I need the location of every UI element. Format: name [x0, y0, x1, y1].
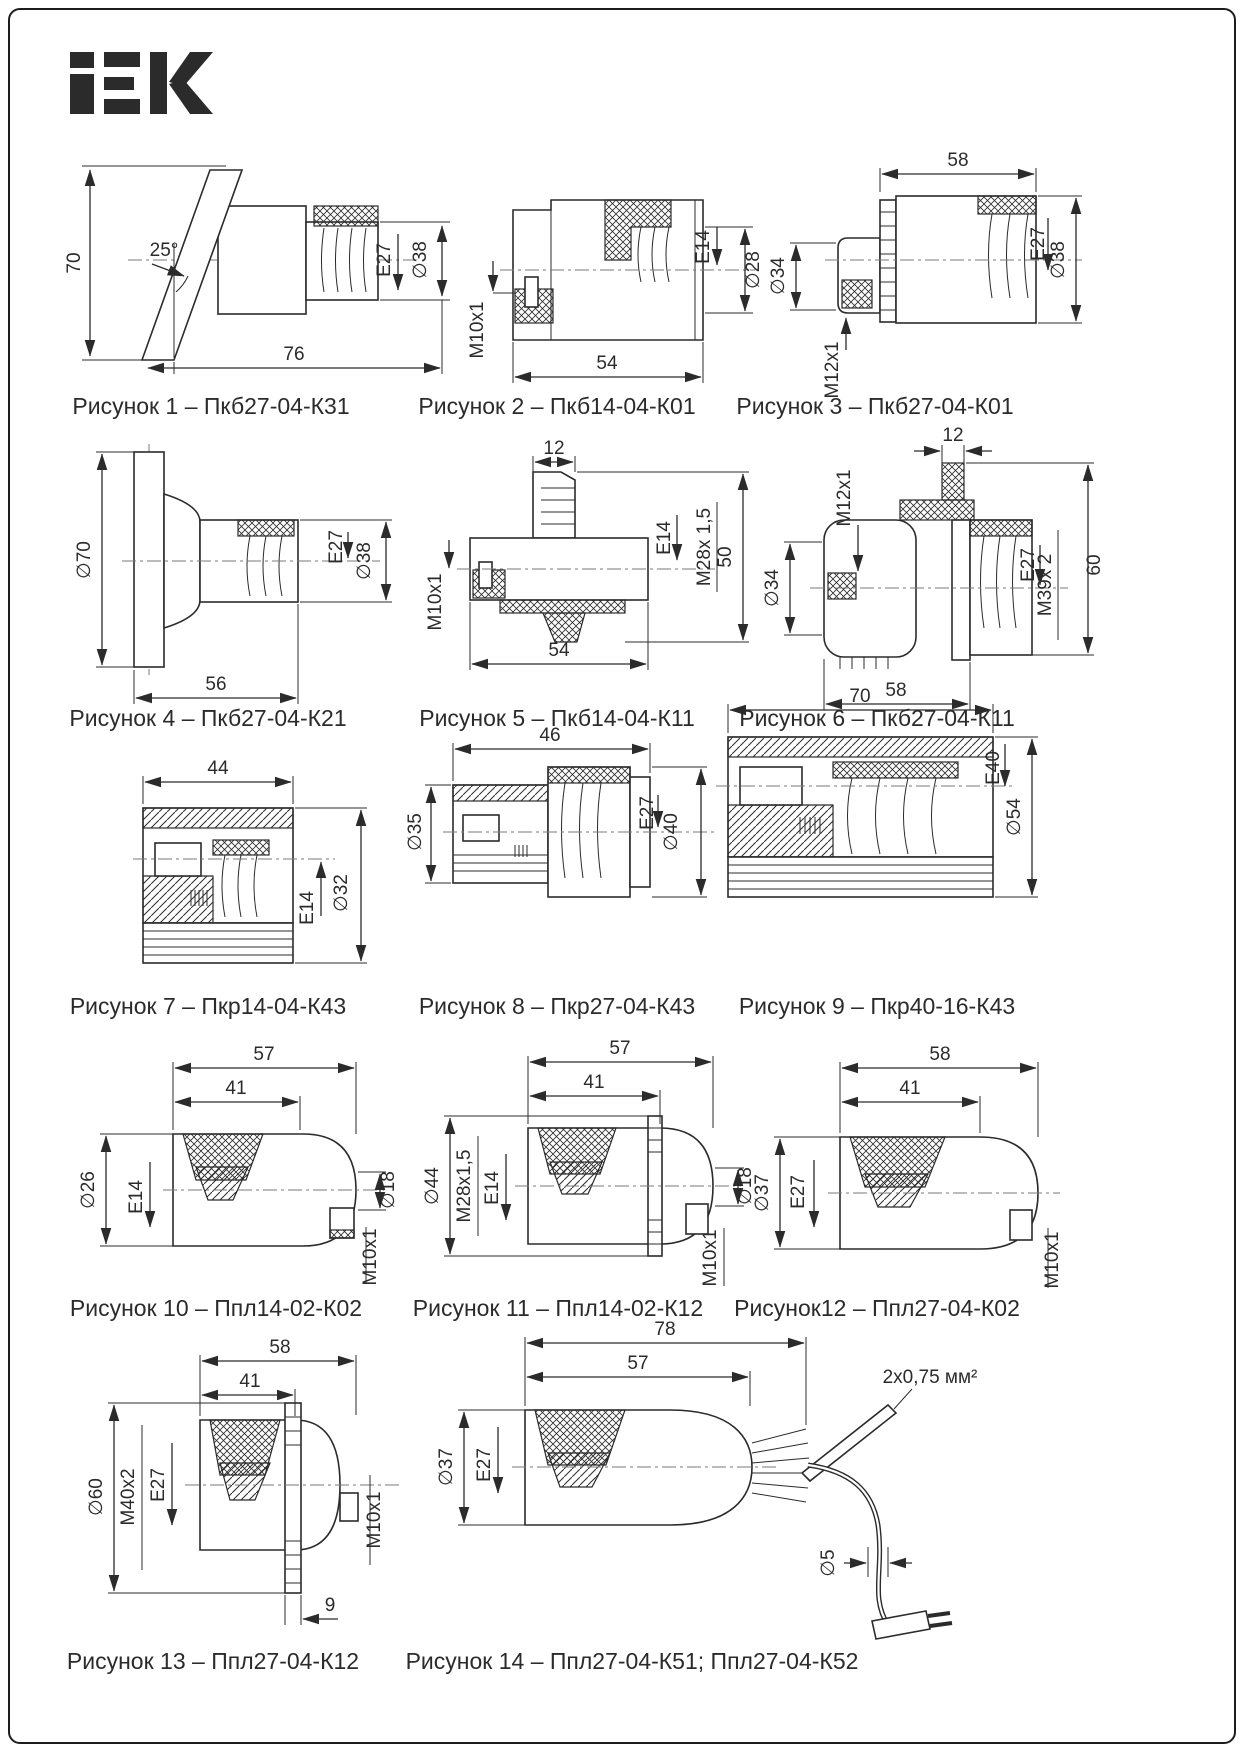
dim-gland: M10x1 — [467, 301, 488, 358]
figure-9-caption: Рисунок 9 – Пкр40-16-К43 — [739, 993, 1015, 1020]
figure-1-caption: Рисунок 1 – Пкб27-04-К31 — [72, 393, 349, 420]
dim-dia: ∅32 — [331, 874, 352, 912]
figure-7-caption: Рисунок 7 – Пкр14-04-К43 — [70, 993, 346, 1020]
dim-length: 58 — [929, 1044, 950, 1065]
figure-3-caption: Рисунок 3 – Пкб27-04-К01 — [736, 393, 1013, 420]
dim-length: 76 — [283, 344, 304, 365]
dim-gland: M10x1 — [425, 573, 446, 630]
dim-dia: ∅54 — [1004, 798, 1025, 836]
dim-lamp: E27 — [1028, 227, 1049, 261]
dim-height: 60 — [1084, 554, 1105, 575]
figure-14-outline — [512, 1405, 952, 1639]
dim-boss: 12 — [942, 425, 963, 446]
dim-mount: M28x 1,5 — [694, 508, 715, 586]
figure-13-caption: Рисунок 13 – Ппл27-04-К12 — [67, 1648, 359, 1675]
iek-logo — [70, 48, 220, 118]
dim-boss: 12 — [543, 438, 564, 459]
dim-length: 57 — [609, 1038, 630, 1059]
dim-nipple: M10x1 — [1042, 1231, 1063, 1288]
dim-cord: 2x0,75 мм² — [883, 1367, 978, 1388]
dim-lamp: E27 — [474, 1448, 495, 1482]
iek-logo-shapes — [70, 52, 213, 114]
figure-6-caption: Рисунок 6 – Пкб27-04-К11 — [739, 705, 1015, 732]
dim-body-len: 41 — [225, 1078, 246, 1099]
dim-body-dia: ∅34 — [762, 569, 783, 607]
figure-10-drawing: 57 41 ∅26 E14 ∅18 M10x1 — [68, 1032, 403, 1297]
figure-5-outline — [457, 472, 715, 642]
dim-length: 54 — [548, 640, 570, 661]
dim-body-dia: ∅35 — [405, 813, 426, 851]
dim-dia: ∅40 — [661, 813, 682, 851]
dim-angle: 25° — [150, 240, 179, 261]
dim-dia: ∅37 — [436, 1448, 457, 1486]
dim-dia: ∅60 — [86, 1478, 107, 1516]
dim-length: 70 — [849, 686, 870, 707]
dim-lamp: E14 — [482, 1171, 503, 1205]
dim-lamp: E14 — [126, 1180, 147, 1214]
dim-lamp: E27 — [326, 530, 347, 564]
dim-body-len: 41 — [899, 1078, 920, 1099]
figure-8-drawing: 46 ∅35 E27 ∅40 — [415, 715, 725, 945]
dim-length: 58 — [947, 150, 968, 171]
figure-4-drawing: ∅70 E27 ∅38 56 — [70, 432, 405, 722]
figure-11-drawing: 57 41 ∅44 M28x1,5 E14 ∅18 M10x1 — [420, 1028, 750, 1298]
figure-12-drawing: 58 41 ∅37 E27 M10x1 — [740, 1032, 1070, 1297]
dim-hole-dia: ∅18 — [378, 1171, 399, 1209]
dim-lamp: E27 — [148, 1468, 169, 1502]
dim-body-len: 41 — [239, 1371, 260, 1392]
dim-height: 70 — [64, 252, 85, 273]
dim-length: 78 — [654, 1319, 675, 1340]
dim-length: 54 — [596, 353, 618, 374]
dim-body-len: 57 — [627, 1353, 648, 1374]
figure-2-caption: Рисунок 2 – Пкб14-04-К01 — [418, 393, 695, 420]
dim-lamp: E27 — [788, 1175, 809, 1209]
dim-dia: ∅38 — [1048, 241, 1069, 279]
figure-1-drawing: 70 25° E27 ∅38 76 — [68, 148, 458, 393]
dim-dia: ∅37 — [752, 1174, 773, 1212]
figure-10-outline — [163, 1134, 378, 1246]
figure-14-caption: Рисунок 14 – Ппл27-04-К51; Ппл27-04-К52 — [406, 1648, 859, 1675]
figure-2-drawing: M10x1 E14 ∅28 54 — [455, 165, 765, 395]
dim-dia: ∅44 — [422, 1167, 443, 1205]
figure-7-drawing: 44 E14 ∅32 — [95, 748, 395, 983]
catalog-page: IEK — [0, 0, 1244, 1752]
figure-3-drawing: 58 ∅34 M12x1 E27 ∅38 — [760, 148, 1090, 393]
dim-dia: ∅26 — [78, 1171, 99, 1209]
dim-body-len: 41 — [583, 1072, 604, 1093]
dim-cord-dia: ∅5 — [818, 1549, 839, 1576]
dim-lamp: E40 — [983, 751, 1004, 785]
figure-5-caption: Рисунок 5 – Пкб14-04-К11 — [419, 705, 695, 732]
figure-7-outline — [133, 808, 335, 963]
dim-offset: 9 — [325, 1595, 336, 1616]
dim-body-dia: ∅34 — [768, 257, 789, 295]
dim-mount: M40x2 — [118, 1468, 139, 1525]
dim-length: 44 — [207, 758, 229, 779]
dim-dia: ∅38 — [354, 542, 375, 580]
dim-gland: M12x1 — [822, 341, 843, 398]
figure-12-caption: Рисунок12 – Ппл27-04-К02 — [734, 1295, 1020, 1322]
dim-length: 58 — [269, 1337, 290, 1358]
dim-nipple: M10x1 — [360, 1228, 381, 1285]
dim-flange-dia: ∅70 — [74, 541, 95, 579]
figure-13-drawing: 58 41 ∅60 M40x2 E27 M10x1 9 — [80, 1325, 430, 1640]
figure-14-drawing: 78 57 ∅37 E27 2x0,75 мм² ∅5 — [420, 1325, 1080, 1675]
dim-length: 56 — [205, 674, 226, 695]
dim-dia: ∅38 — [410, 241, 431, 279]
dim-lamp: E14 — [693, 230, 714, 264]
dim-lamp: E14 — [654, 521, 675, 555]
dim-gland: M12x1 — [834, 469, 855, 526]
figure-9-outline — [716, 737, 1012, 897]
dim-mount: M39x 2 — [1035, 554, 1056, 616]
dim-lamp: E27 — [374, 243, 395, 277]
dim-nipple: M10x1 — [700, 1229, 721, 1286]
figure-6-dimensions: M12x1 12 ∅34 E27 M39x 2 60 58 — [762, 425, 1105, 710]
figure-2-outline — [500, 200, 755, 340]
figure-11-caption: Рисунок 11 – Ппл14-02-К12 — [413, 1295, 703, 1322]
figure-8-caption: Рисунок 8 – Пкр27-04-К43 — [419, 993, 695, 1020]
dim-lamp: E14 — [297, 891, 318, 925]
figure-6-drawing: M12x1 12 ∅34 E27 M39x 2 60 58 — [728, 425, 1113, 725]
dim-mount: M28x1,5 — [454, 1150, 475, 1223]
figure-5-drawing: 12 M10x1 E14 M28x 1,5 50 54 — [415, 430, 760, 720]
dim-lamp: E27 — [637, 796, 658, 830]
figure-10-caption: Рисунок 10 – Ппл14-02-К02 — [70, 1295, 362, 1322]
figure-4-caption: Рисунок 4 – Пкб27-04-К21 — [69, 705, 346, 732]
dim-length: 57 — [253, 1044, 274, 1065]
dim-nipple: M10x1 — [364, 1491, 385, 1548]
figure-12-outline — [828, 1137, 1060, 1249]
